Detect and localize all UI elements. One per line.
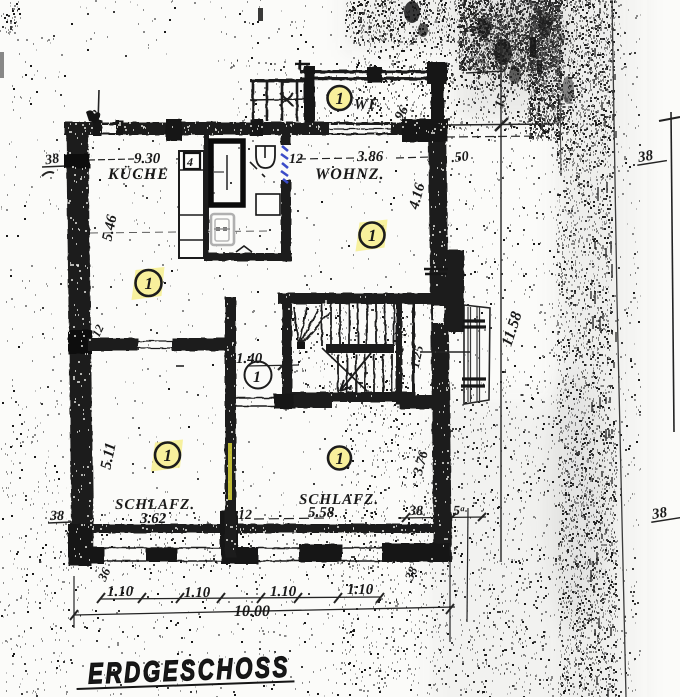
svg-text:.50: .50 bbox=[451, 149, 470, 166]
svg-text:1: 1 bbox=[145, 274, 154, 293]
svg-text:12: 12 bbox=[289, 152, 303, 167]
svg-text:12: 12 bbox=[238, 508, 252, 523]
svg-text:10.00: 10.00 bbox=[234, 603, 270, 620]
svg-text:5.46: 5.46 bbox=[100, 213, 121, 242]
svg-text:1.25: 1.25 bbox=[407, 344, 427, 370]
svg-text:38: 38 bbox=[408, 504, 423, 519]
svg-text:1.10: 1.10 bbox=[347, 582, 374, 598]
svg-text:3.86: 3.86 bbox=[356, 149, 384, 165]
svg-text:9.30: 9.30 bbox=[134, 151, 161, 167]
svg-text:11.58: 11.58 bbox=[499, 310, 526, 349]
svg-text:1.10: 1.10 bbox=[270, 584, 297, 600]
svg-text:36: 36 bbox=[94, 565, 114, 584]
svg-text:WF: WF bbox=[354, 97, 379, 113]
svg-text:5.11: 5.11 bbox=[97, 441, 119, 471]
svg-text:KÜCHE: KÜCHE bbox=[107, 165, 169, 183]
svg-text:1: 1 bbox=[253, 369, 261, 386]
svg-text:4: 4 bbox=[186, 155, 193, 169]
svg-text:1.10: 1.10 bbox=[107, 584, 134, 600]
svg-text:1: 1 bbox=[336, 89, 345, 108]
svg-text:1: 1 bbox=[336, 449, 345, 468]
svg-text:4.16: 4.16 bbox=[406, 181, 429, 212]
svg-text:3.76: 3.76 bbox=[411, 449, 432, 478]
svg-text:1: 1 bbox=[368, 226, 377, 245]
svg-text:WOHNZ.: WOHNZ. bbox=[315, 166, 385, 183]
svg-text:5.58: 5.58 bbox=[308, 505, 335, 521]
svg-text:38: 38 bbox=[401, 564, 421, 583]
svg-text:1.10: 1.10 bbox=[184, 585, 211, 601]
svg-text:1: 1 bbox=[164, 446, 173, 465]
